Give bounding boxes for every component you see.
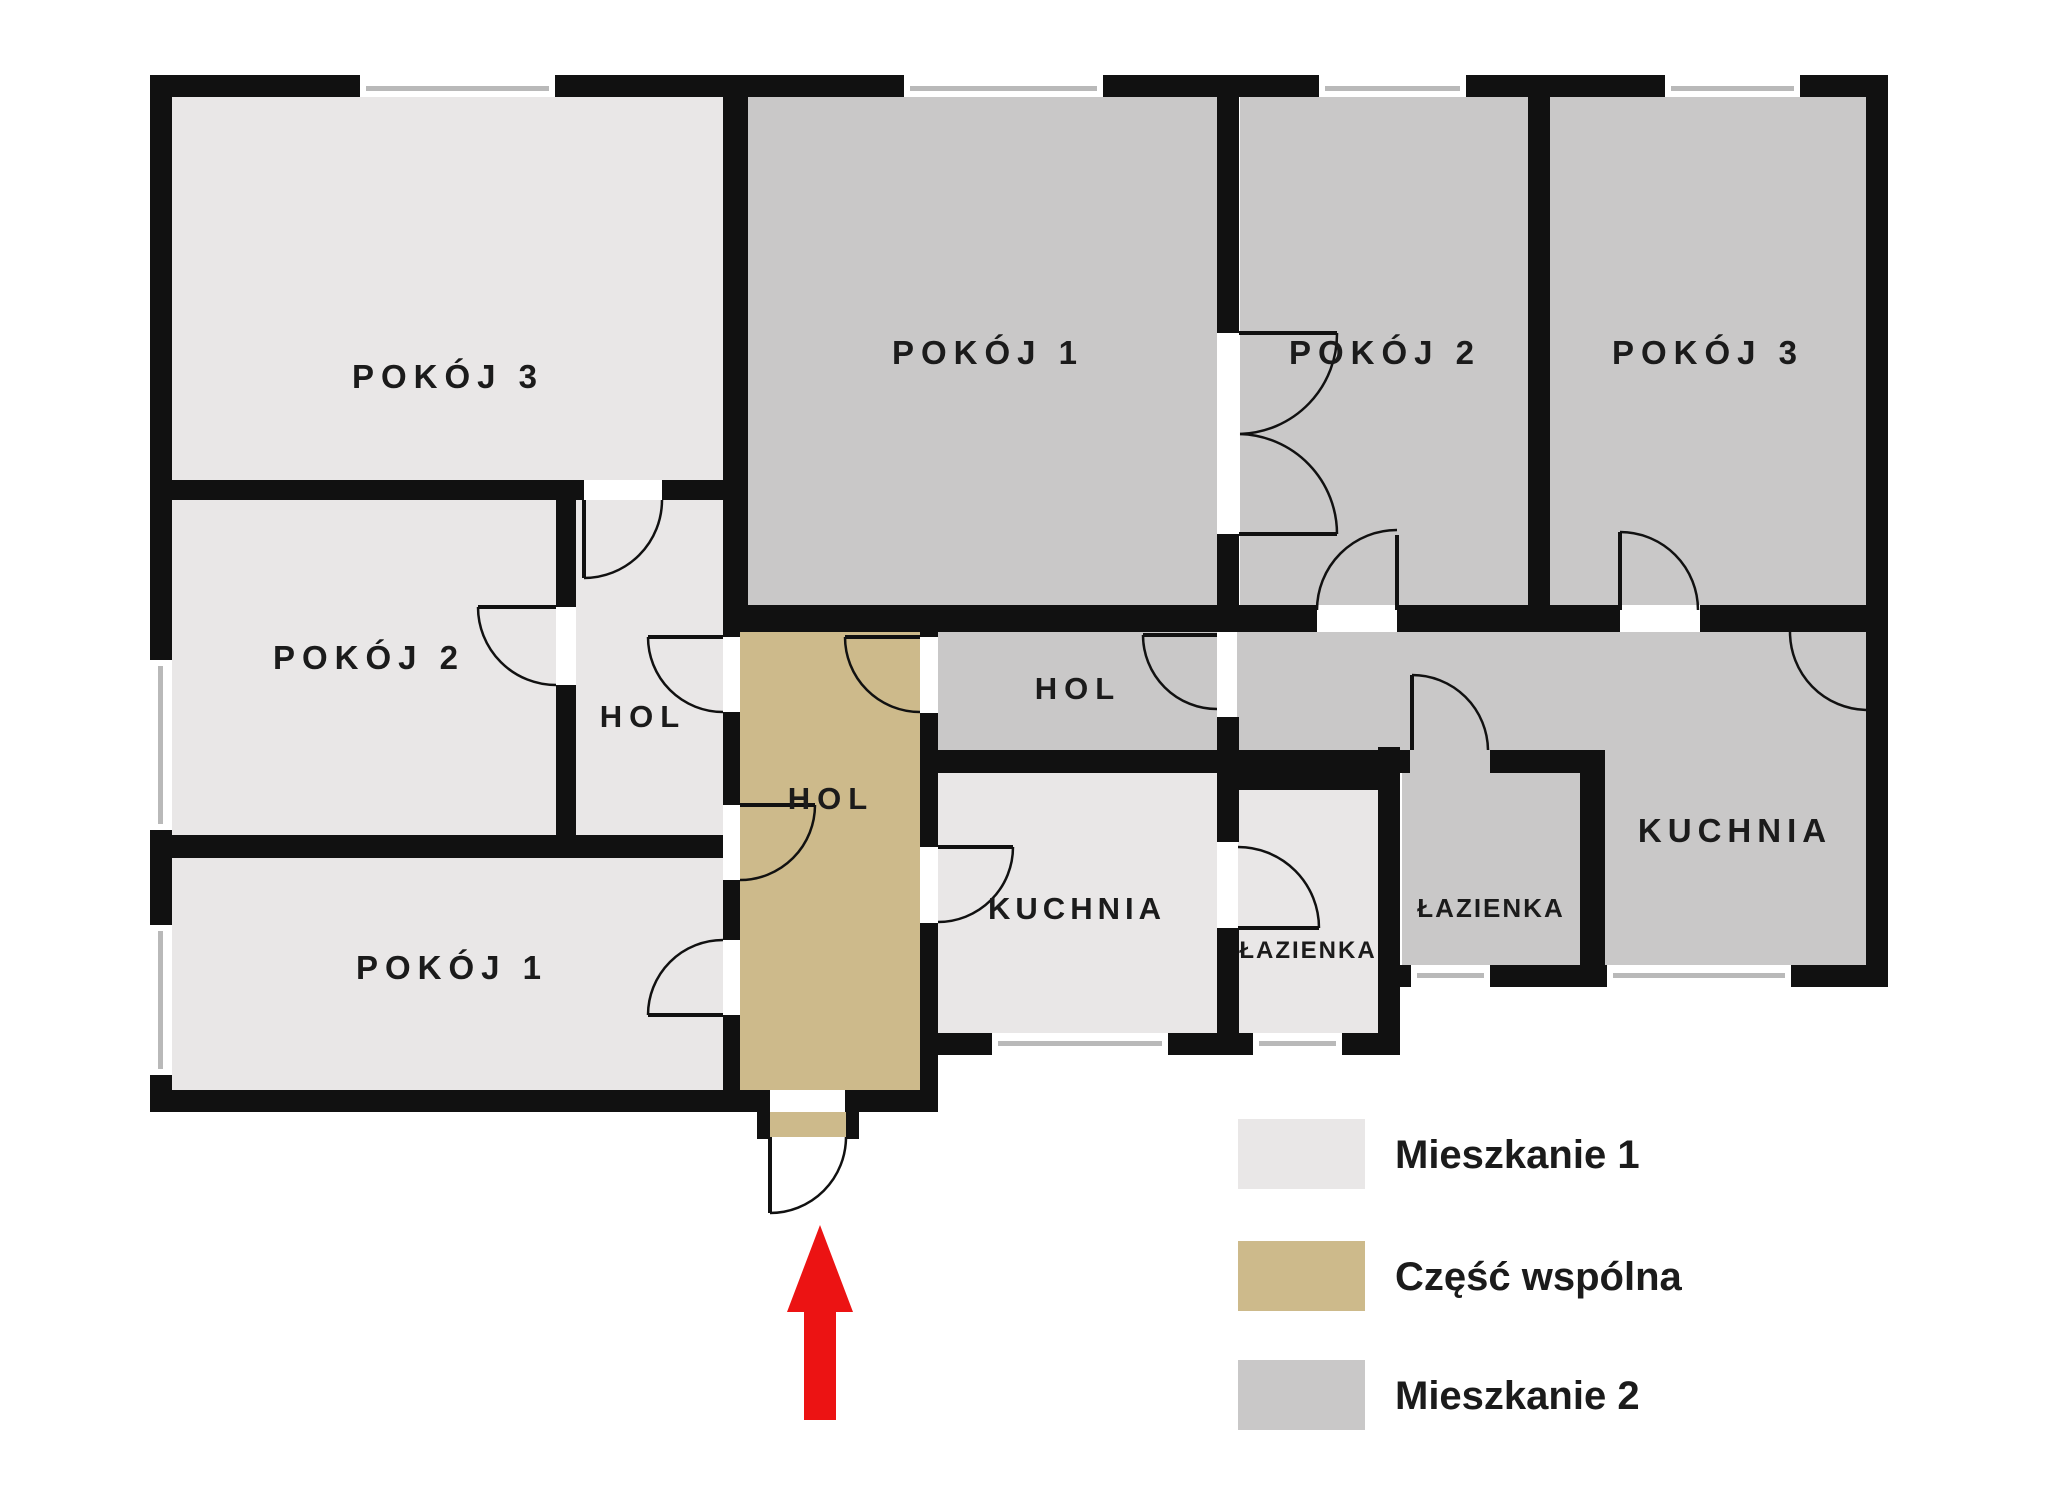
wall-tan-left-2 <box>723 712 740 805</box>
floor-plan-page: POKÓJ 3 POKÓJ 2 HOL POKÓJ 1 HOL KUCHNIA … <box>0 0 2048 1489</box>
window-top-m1p3 <box>360 75 555 97</box>
entrance <box>757 1090 859 1420</box>
wall-m2-p1p2-1 <box>1217 97 1239 333</box>
room-label-m2-hol: HOL <box>1035 671 1121 706</box>
wall-hol-divider <box>1217 717 1239 750</box>
room-m2-hol-east <box>1237 632 1402 750</box>
legend-label-mieszkanie1: Mieszkanie 1 <box>1395 1133 1640 1177</box>
wall-m1-pokoj2-right-1 <box>556 500 576 607</box>
room-m1-lazienka <box>1238 790 1378 1033</box>
room-label-common-hol: HOL <box>788 781 874 816</box>
wall-kuchnia-lazienka-2 <box>1217 928 1239 1033</box>
wall-hol-south-b <box>1490 750 1605 773</box>
room-label-m2-pokoj2: POKÓJ 2 <box>1289 334 1481 371</box>
entrance-vestibule <box>770 1112 846 1137</box>
wall-boundary-top <box>723 75 748 612</box>
room-label-m2-kuchnia: KUCHNIA <box>1638 812 1832 849</box>
window-left-m1p1 <box>150 925 172 1075</box>
window-bottom-m1lazienka <box>1253 1033 1342 1055</box>
room-label-m1-pokoj1: POKÓJ 1 <box>356 949 548 986</box>
room-label-m2-pokoj3: POKÓJ 3 <box>1612 334 1804 371</box>
wall-m2-rooms-bottom-c <box>1700 605 1866 632</box>
wall-m1-pokoj3-bottom-b <box>662 480 723 500</box>
wall-tan-right-3 <box>920 923 938 1033</box>
wall-tan-left-3 <box>723 880 740 940</box>
room-m1-hol <box>576 500 723 835</box>
room-m2-lazienka <box>1402 773 1580 965</box>
wall-m2-p2p3 <box>1528 97 1550 612</box>
legend-label-mieszkanie2: Mieszkanie 2 <box>1395 1374 1640 1418</box>
entrance-door <box>770 1137 846 1213</box>
entrance-opening <box>770 1090 845 1114</box>
room-label-m1-lazienka: ŁAZIENKA <box>1239 937 1376 964</box>
wall-hol-south-a <box>938 750 1410 773</box>
room-label-m1-hol: HOL <box>600 699 686 734</box>
rooms <box>172 97 1866 1090</box>
wall-m1-pokoj3-bottom-a <box>172 480 584 500</box>
room-label-m2-lazienka: ŁAZIENKA <box>1417 893 1564 923</box>
room-label-m1-pokoj2: POKÓJ 2 <box>273 639 465 676</box>
legend-swatch-mieszkanie2 <box>1238 1360 1365 1430</box>
wall-lazienka1-right <box>1378 747 1400 1055</box>
window-bottom-m2kuchnia <box>1607 965 1791 987</box>
room-m1-pokoj3 <box>172 97 723 480</box>
room-label-m1-kuchnia: KUCHNIA <box>988 891 1166 926</box>
room-common-hol <box>740 612 920 1090</box>
wall-lazienka1-top <box>1217 773 1400 790</box>
wall-outer-right <box>1866 75 1888 987</box>
room-m2-kuchnia <box>1605 632 1866 965</box>
window-top-m2p3 <box>1665 75 1800 97</box>
floor-plan: POKÓJ 3 POKÓJ 2 HOL POKÓJ 1 HOL KUCHNIA … <box>0 0 2048 1489</box>
legend-swatch-mieszkanie1 <box>1238 1119 1365 1189</box>
wall-bottom-left-a <box>150 1090 770 1112</box>
legend-label-czesc-wspolna: Część wspólna <box>1395 1255 1683 1299</box>
wall-m1-pokoj2-bottom <box>172 835 723 858</box>
entrance-jamb-right <box>846 1112 859 1139</box>
entrance-arrow-icon <box>787 1225 853 1420</box>
wall-step-left <box>920 1033 938 1112</box>
wall-m2-rooms-bottom-a <box>723 605 1317 632</box>
room-label-m1-pokoj3: POKÓJ 3 <box>352 358 544 395</box>
wall-lazienka2-right <box>1580 763 1605 965</box>
window-top-m2p2 <box>1319 75 1466 97</box>
window-bottom-m1kuchnia <box>992 1033 1168 1055</box>
entrance-jamb-left <box>757 1112 770 1139</box>
window-left-m1p2 <box>150 660 172 830</box>
wall-tan-right-2 <box>920 713 938 847</box>
legend-swatch-czesc-wspolna <box>1238 1241 1365 1311</box>
window-bottom-m2lazienka <box>1411 965 1490 987</box>
room-label-m2-pokoj1: POKÓJ 1 <box>892 334 1084 371</box>
wall-m1-pokoj2-right-2 <box>556 685 576 835</box>
wall-m2-rooms-bottom-b <box>1397 605 1620 632</box>
wall-tan-left-4 <box>723 1015 740 1090</box>
legend: Mieszkanie 1 Część wspólna Mieszkanie 2 <box>1238 1119 1683 1430</box>
window-top-m2p1 <box>904 75 1103 97</box>
